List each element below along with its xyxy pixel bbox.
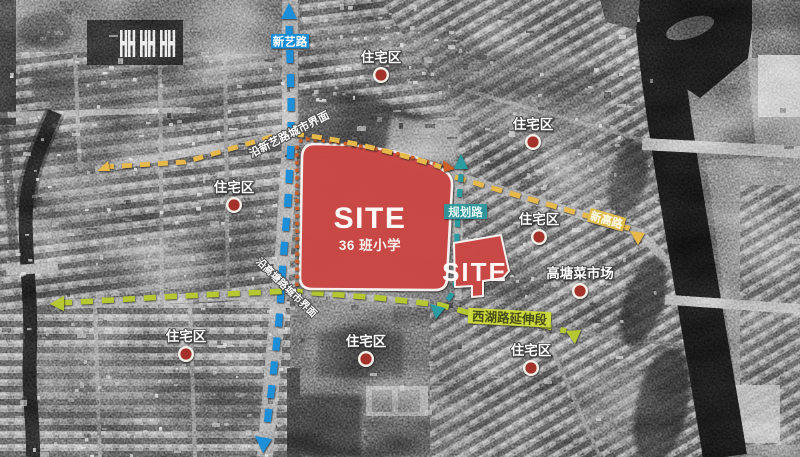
svg-text:新艺路: 新艺路 [273,35,308,49]
svg-text:住宅区: 住宅区 [346,333,387,349]
svg-text:规划路: 规划路 [448,205,483,219]
svg-text:住宅区: 住宅区 [214,179,255,195]
svg-text:住宅区: 住宅区 [511,342,552,358]
svg-text:SITE: SITE [334,202,407,235]
svg-text:住宅区: 住宅区 [361,49,402,65]
svg-text:住宅区: 住宅区 [166,328,207,344]
svg-text:住宅区: 住宅区 [519,211,560,227]
svg-text:36 班小学: 36 班小学 [339,237,401,253]
svg-text:SITE: SITE [442,257,508,287]
svg-text:住宅区: 住宅区 [513,116,554,132]
svg-text:高塘菜市场: 高塘菜市场 [546,265,614,281]
